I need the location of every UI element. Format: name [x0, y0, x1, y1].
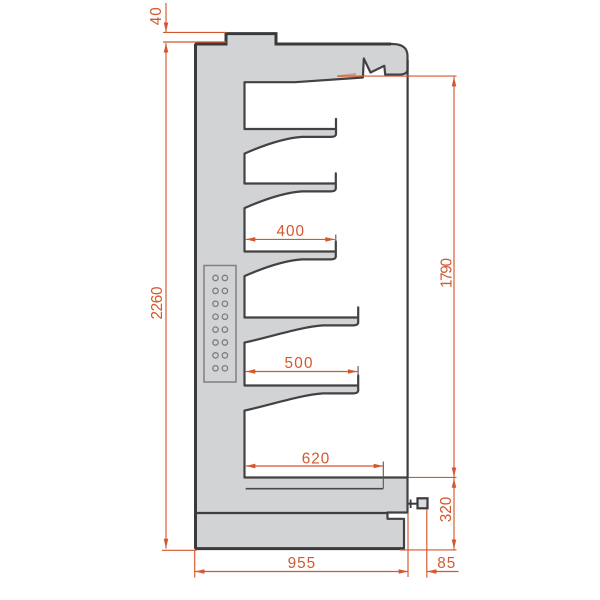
svg-text:40: 40 — [148, 7, 165, 25]
svg-text:955: 955 — [288, 555, 316, 572]
svg-text:1790: 1790 — [439, 258, 456, 288]
svg-text:2260: 2260 — [149, 287, 166, 320]
svg-text:620: 620 — [302, 451, 330, 468]
svg-text:85: 85 — [437, 555, 455, 572]
svg-text:400: 400 — [277, 223, 305, 240]
svg-text:320: 320 — [438, 497, 455, 523]
svg-text:500: 500 — [285, 355, 313, 372]
